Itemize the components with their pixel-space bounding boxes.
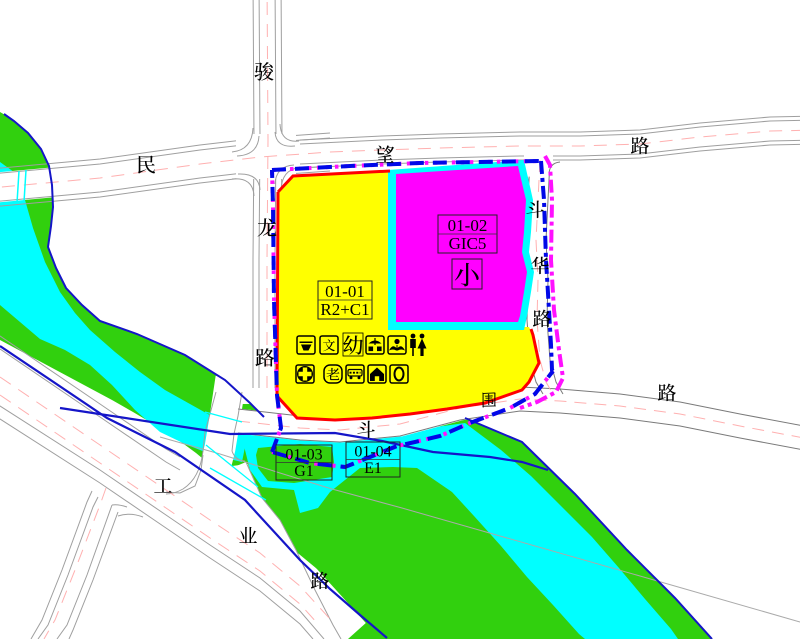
svg-text:01-04: 01-04 — [354, 444, 391, 461]
svg-text:01-02: 01-02 — [448, 216, 488, 235]
svg-text:R2+C1: R2+C1 — [320, 300, 369, 319]
svg-text:GIC5: GIC5 — [449, 234, 487, 253]
svg-text:01-03: 01-03 — [285, 447, 322, 464]
svg-text:01-01: 01-01 — [325, 282, 365, 301]
svg-text:G1: G1 — [294, 463, 314, 480]
svg-text:E1: E1 — [364, 460, 382, 477]
